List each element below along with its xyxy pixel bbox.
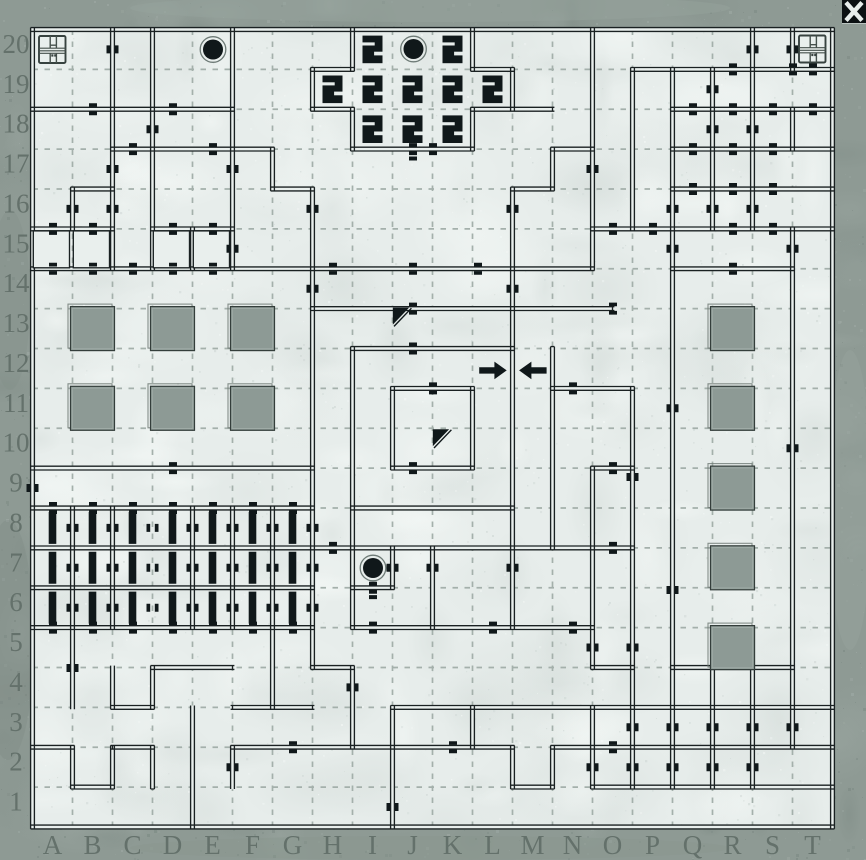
- svg-text:2: 2: [9, 747, 23, 777]
- svg-text:J: J: [407, 830, 418, 860]
- svg-text:15: 15: [3, 228, 30, 258]
- svg-text:12: 12: [3, 348, 30, 378]
- svg-text:18: 18: [3, 109, 30, 139]
- svg-text:9: 9: [9, 468, 23, 498]
- svg-text:M: M: [520, 830, 544, 860]
- svg-text:4: 4: [9, 667, 23, 697]
- svg-text:13: 13: [3, 308, 30, 338]
- svg-text:N: N: [563, 830, 583, 860]
- svg-text:6: 6: [9, 587, 23, 617]
- svg-text:F: F: [245, 830, 260, 860]
- svg-text:P: P: [645, 830, 660, 860]
- svg-text:Q: Q: [683, 830, 703, 860]
- svg-text:D: D: [163, 830, 183, 860]
- svg-text:C: C: [123, 830, 141, 860]
- svg-text:E: E: [204, 830, 221, 860]
- svg-text:T: T: [804, 830, 821, 860]
- svg-text:O: O: [603, 830, 623, 860]
- svg-text:19: 19: [3, 69, 30, 99]
- svg-text:K: K: [443, 830, 463, 860]
- svg-text:1: 1: [9, 787, 23, 817]
- svg-text:17: 17: [3, 149, 30, 179]
- svg-text:I: I: [368, 830, 377, 860]
- svg-text:5: 5: [9, 627, 23, 657]
- svg-text:20: 20: [3, 29, 30, 59]
- svg-text:10: 10: [3, 428, 30, 458]
- svg-text:16: 16: [3, 188, 30, 218]
- svg-text:A: A: [43, 830, 63, 860]
- svg-text:R: R: [723, 830, 741, 860]
- svg-text:S: S: [765, 830, 780, 860]
- svg-text:L: L: [484, 830, 501, 860]
- svg-text:14: 14: [3, 268, 31, 298]
- svg-text:H: H: [323, 830, 343, 860]
- svg-text:11: 11: [3, 388, 29, 418]
- svg-text:8: 8: [9, 507, 23, 537]
- svg-text:B: B: [83, 830, 101, 860]
- svg-text:3: 3: [9, 707, 23, 737]
- svg-text:7: 7: [9, 547, 23, 577]
- svg-text:G: G: [283, 830, 303, 860]
